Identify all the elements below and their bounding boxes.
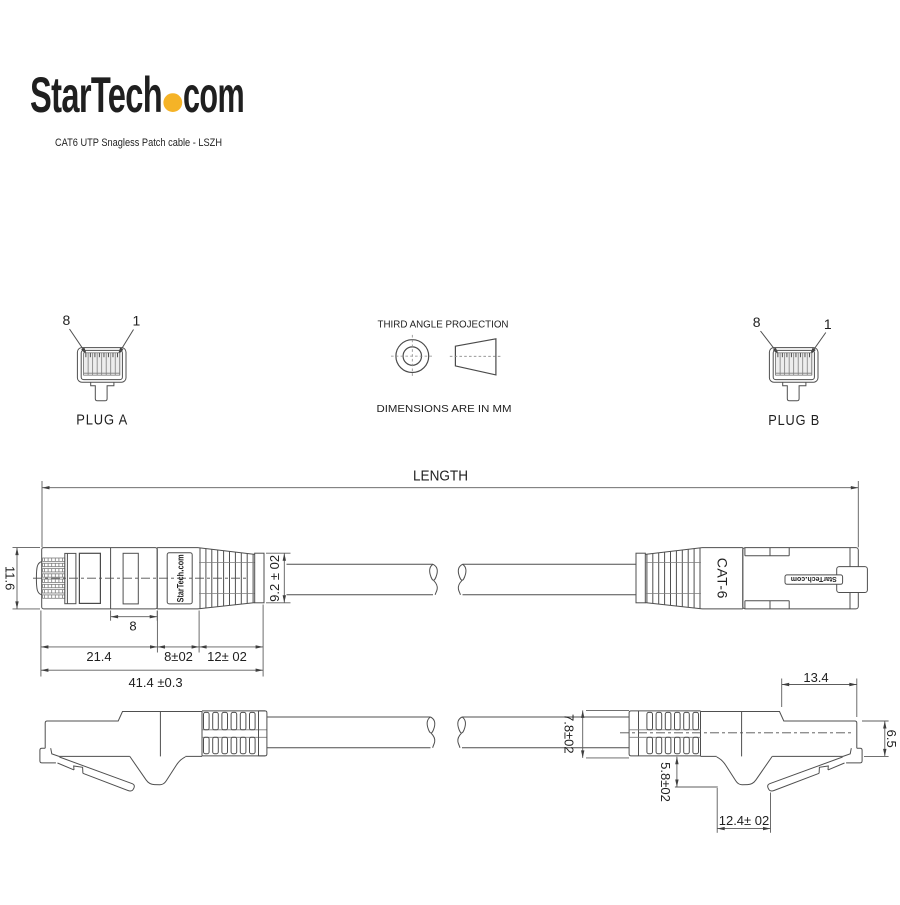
- svg-text:THIRD ANGLE PROJECTION: THIRD ANGLE PROJECTION: [378, 319, 509, 330]
- svg-text:StarTech: StarTech: [30, 67, 162, 123]
- svg-text:6.5: 6.5: [884, 730, 899, 748]
- svg-text:CAT-6: CAT-6: [715, 558, 731, 599]
- svg-text:41.4 ±0.3: 41.4 ±0.3: [128, 675, 182, 690]
- svg-text:13.4: 13.4: [803, 670, 828, 685]
- svg-text:1: 1: [133, 313, 141, 329]
- svg-text:PLUG A: PLUG A: [76, 412, 128, 428]
- svg-text:PLUG B: PLUG B: [768, 413, 820, 429]
- svg-text:8±02: 8±02: [164, 649, 193, 664]
- svg-text:8: 8: [129, 619, 136, 634]
- svg-text:9.2 ± 02: 9.2 ± 02: [267, 555, 282, 602]
- svg-text:com: com: [183, 67, 244, 123]
- svg-text:5.8±02: 5.8±02: [658, 762, 673, 802]
- svg-text:12± 02: 12± 02: [207, 649, 247, 664]
- svg-text:8: 8: [63, 312, 71, 328]
- svg-text:1: 1: [824, 316, 832, 332]
- svg-text:8: 8: [753, 314, 761, 330]
- svg-text:CAT6 UTP Snagless Patch cable: CAT6 UTP Snagless Patch cable - LSZH: [55, 137, 222, 149]
- svg-text:DIMENSIONS ARE IN MM: DIMENSIONS ARE IN MM: [377, 404, 512, 415]
- svg-text:7.8±02: 7.8±02: [562, 714, 577, 754]
- svg-text:12.4± 02: 12.4± 02: [719, 813, 770, 828]
- svg-text:StarTech.com: StarTech.com: [790, 575, 836, 585]
- svg-text:11.6: 11.6: [3, 566, 18, 590]
- svg-text:LENGTH: LENGTH: [413, 468, 468, 485]
- svg-text:21.4: 21.4: [86, 649, 111, 664]
